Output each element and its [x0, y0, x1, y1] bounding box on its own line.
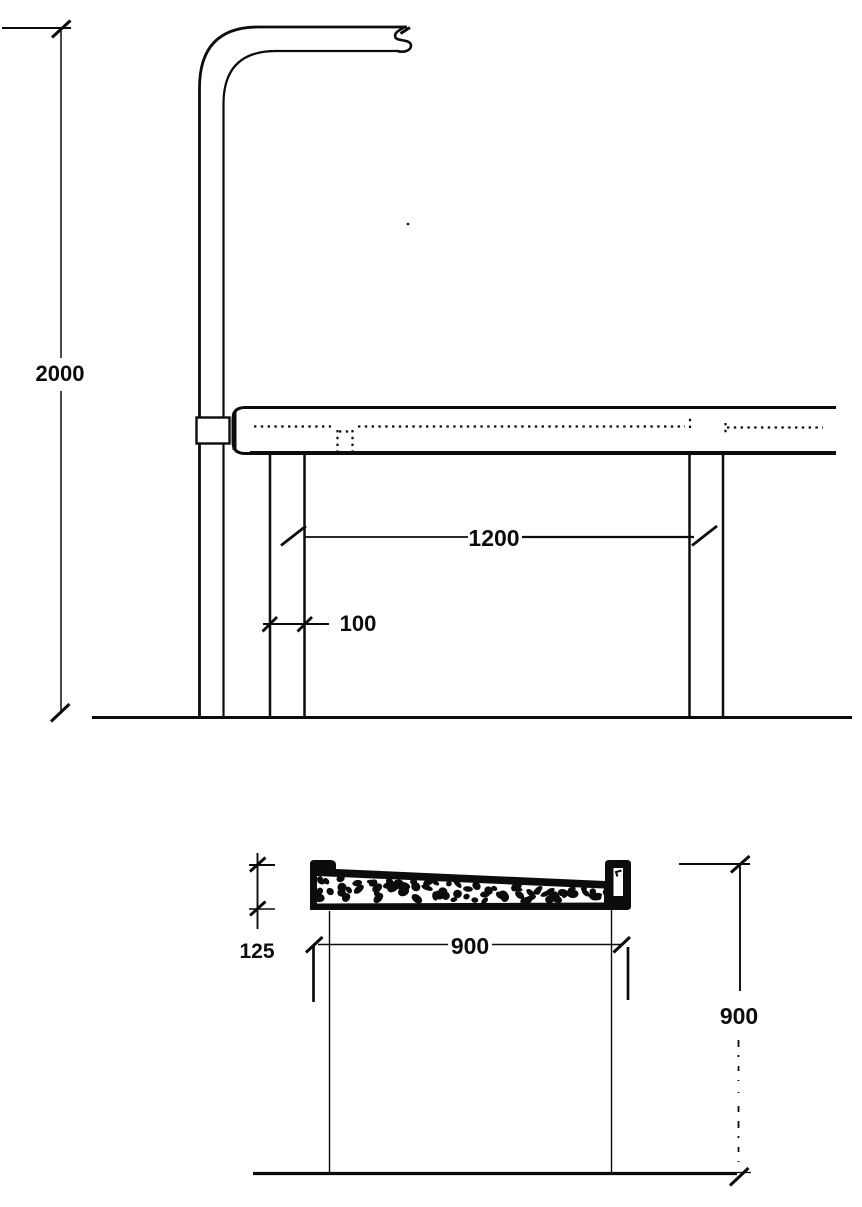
svg-text:125: 125 [239, 940, 274, 963]
svg-text:900: 900 [720, 1003, 758, 1029]
svg-text:1200: 1200 [468, 525, 519, 551]
svg-text:900: 900 [451, 933, 489, 959]
svg-text:2000: 2000 [36, 361, 85, 386]
svg-text:100: 100 [340, 611, 377, 636]
